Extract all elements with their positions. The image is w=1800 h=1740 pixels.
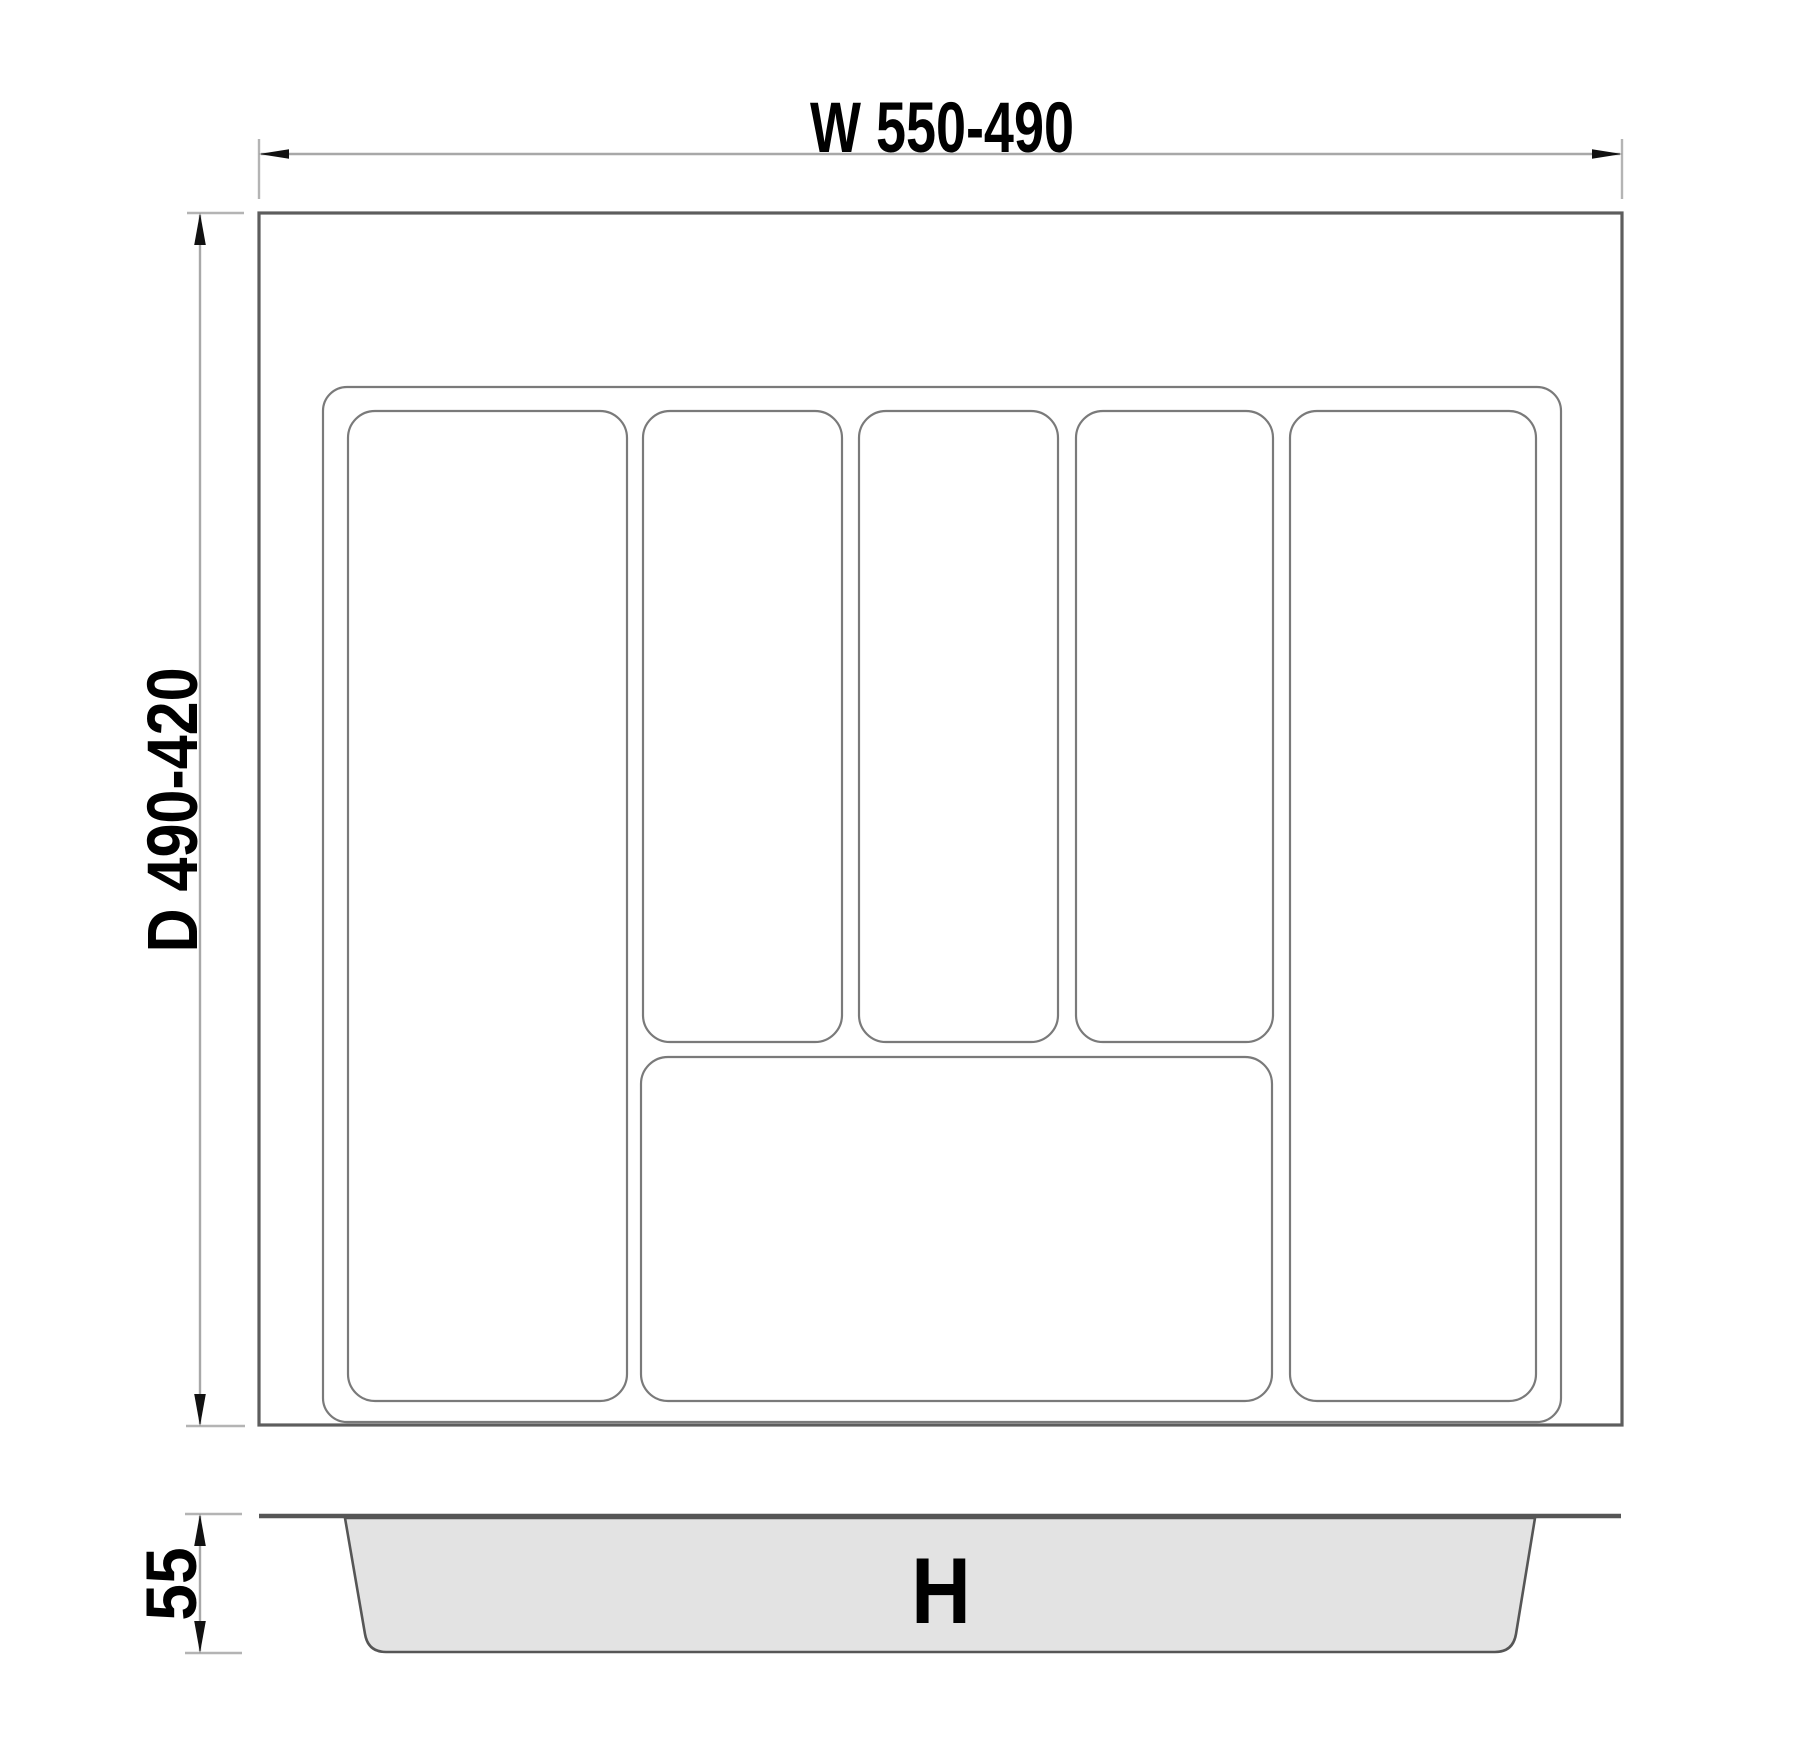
svg-text:D 490-420: D 490-420: [134, 667, 213, 952]
svg-text:W 550-490: W 550-490: [810, 89, 1074, 168]
svg-text:H: H: [911, 1538, 971, 1643]
svg-text:55: 55: [132, 1547, 212, 1620]
